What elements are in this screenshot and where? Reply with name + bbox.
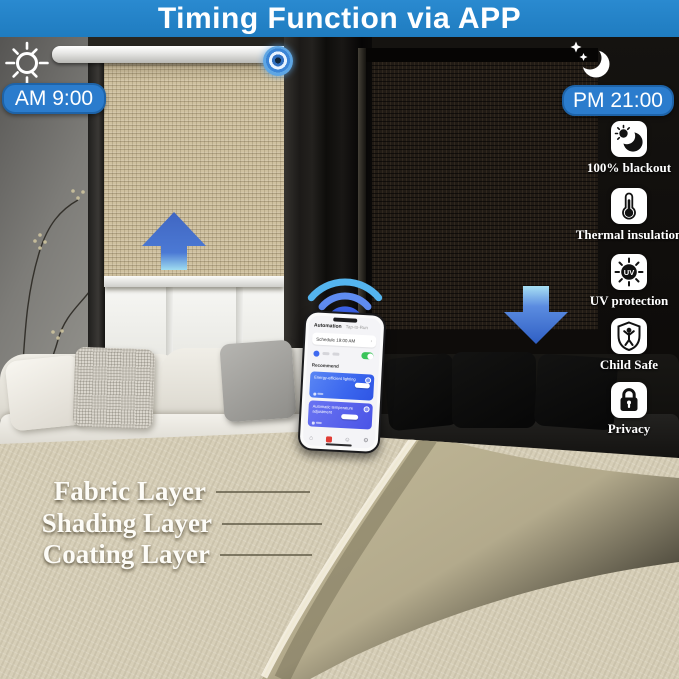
blackout-moon-icon	[610, 120, 648, 158]
phone-frame: Automation Tap-to-Run Schedule 19:00 AM …	[297, 310, 386, 454]
layer-label: Coating Layer	[43, 539, 210, 570]
night-time-badge: PM 21:00	[562, 85, 674, 116]
scene-icon: ☺	[344, 437, 350, 443]
card-meta	[312, 421, 322, 424]
time-placeholder	[322, 352, 329, 355]
layer-label: Shading Layer	[42, 508, 212, 539]
home-indicator	[326, 443, 352, 446]
layer-label: Fabric Layer	[54, 476, 206, 507]
pillow-black	[452, 352, 536, 428]
blind-bottom-bar	[104, 276, 284, 287]
card-button	[355, 383, 370, 389]
smart-tab-icon	[325, 436, 331, 442]
schedule-title: Schedule 19:00 AM	[316, 336, 355, 343]
app-screen: Automation Tap-to-Run Schedule 19:00 AM …	[303, 315, 382, 449]
card-title: Energy-efficient lighting	[314, 375, 356, 382]
pillow-textured	[73, 347, 156, 430]
tab-tap-to-run: Tap-to-Run	[346, 324, 368, 330]
thermometer-icon	[610, 187, 648, 225]
smart-motor-indicator	[263, 46, 293, 76]
recommend-card-2: Automatic temperature adjustment	[308, 400, 373, 429]
roller-tube	[52, 46, 286, 63]
uv-sun-icon: UV	[610, 253, 648, 291]
night-time-label: PM 21:00	[573, 89, 663, 113]
card-badge-icon	[365, 377, 371, 383]
time-placeholder	[332, 352, 339, 355]
feature-child-safe: Child Safe	[579, 317, 679, 373]
schedule-card: Schedule 19:00 AM ›	[312, 332, 377, 347]
feature-blackout: 100% blackout	[579, 120, 679, 176]
feature-label: 100% blackout	[587, 160, 671, 176]
chevron-right-icon: ›	[370, 338, 372, 344]
recommend-card-1: Energy-efficient lighting	[309, 371, 374, 400]
feature-label: Child Safe	[600, 357, 658, 373]
card-button	[341, 414, 358, 420]
layer-row-coating: Coating Layer	[0, 539, 312, 570]
layer-pointer-line	[222, 523, 322, 525]
feature-privacy: Privacy	[579, 381, 679, 437]
pillow-gray	[219, 340, 296, 423]
product-image: Timing Function via APP	[0, 0, 679, 679]
blind-header-night	[366, 48, 598, 62]
card-meta	[313, 393, 323, 396]
child-safe-shield-icon	[610, 317, 648, 355]
toggle-knob	[367, 353, 373, 359]
layer-pointer-line	[220, 554, 312, 556]
banner: Timing Function via APP	[0, 0, 679, 37]
day-time-label: AM 9:00	[15, 87, 93, 111]
svg-text:UV: UV	[624, 268, 634, 277]
home-icon: ⌂	[309, 435, 313, 441]
banner-title: Timing Function via APP	[158, 2, 521, 36]
feature-thermal: Thermal insulation	[579, 187, 679, 243]
feature-label: Thermal insulation	[576, 227, 679, 243]
smartphone: Automation Tap-to-Run Schedule 19:00 AM …	[297, 310, 386, 454]
pillow-black	[382, 353, 459, 432]
schedule-toggle-on	[361, 352, 373, 360]
feature-label: Privacy	[608, 421, 651, 437]
arrow-up-icon	[142, 212, 206, 272]
layer-pointer-line	[216, 491, 310, 493]
layer-row-fabric: Fabric Layer	[0, 476, 310, 507]
sun-icon	[4, 40, 50, 86]
arrow-down-icon	[504, 286, 568, 346]
tab-automation: Automation	[314, 322, 342, 329]
moon-icon	[566, 38, 618, 86]
feature-uv: UV UV protection	[579, 253, 679, 309]
feature-label: UV protection	[590, 293, 669, 309]
profile-icon: ⚙	[363, 438, 369, 444]
device-icon	[313, 350, 319, 356]
layer-row-shading: Shading Layer	[0, 508, 322, 539]
privacy-lock-icon	[610, 381, 648, 419]
day-time-badge: AM 9:00	[2, 83, 106, 114]
card-badge-icon	[363, 406, 369, 412]
